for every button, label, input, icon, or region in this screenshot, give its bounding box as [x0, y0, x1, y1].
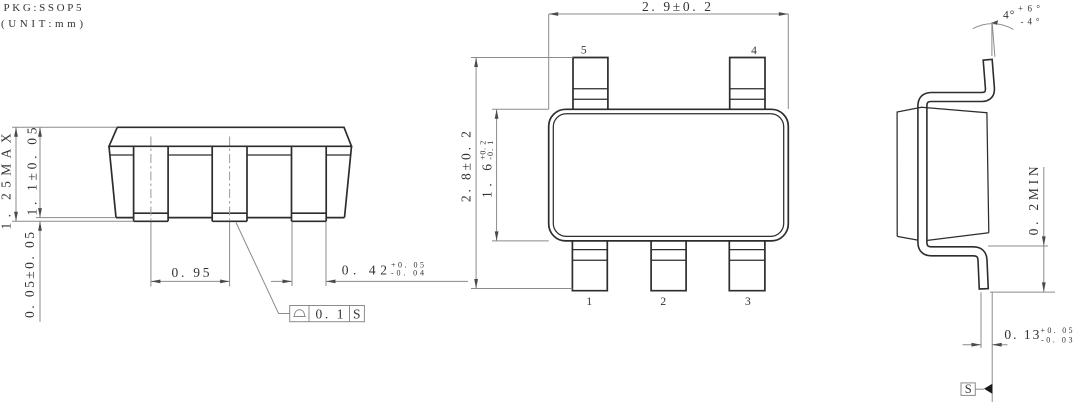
svg-text:2: 2	[660, 296, 666, 308]
svg-text:-0. 1: -0. 1	[486, 141, 495, 160]
svg-text:0. 2MIN: 0. 2MIN	[1026, 166, 1041, 235]
svg-text:5: 5	[581, 45, 587, 57]
svg-text:4°: 4°	[1003, 10, 1015, 22]
svg-text:(UNIT:mm): (UNIT:mm)	[1, 18, 83, 30]
svg-text:PKG:SSOP5: PKG:SSOP5	[4, 2, 83, 14]
svg-text:-4°: -4°	[1021, 17, 1040, 27]
svg-text:-0. 03: -0. 03	[1041, 336, 1073, 345]
svg-text:4: 4	[751, 45, 757, 57]
svg-text:3: 3	[745, 296, 751, 308]
svg-text:-0. 04: -0. 04	[391, 269, 424, 278]
svg-text:+6°: +6°	[1018, 4, 1040, 14]
svg-text:2. 9±0. 2: 2. 9±0. 2	[642, 0, 711, 14]
svg-text:S: S	[965, 382, 972, 396]
svg-text:2. 8±0. 2: 2. 8±0. 2	[458, 131, 473, 202]
svg-text:1: 1	[586, 296, 592, 308]
svg-text:S: S	[353, 306, 361, 321]
